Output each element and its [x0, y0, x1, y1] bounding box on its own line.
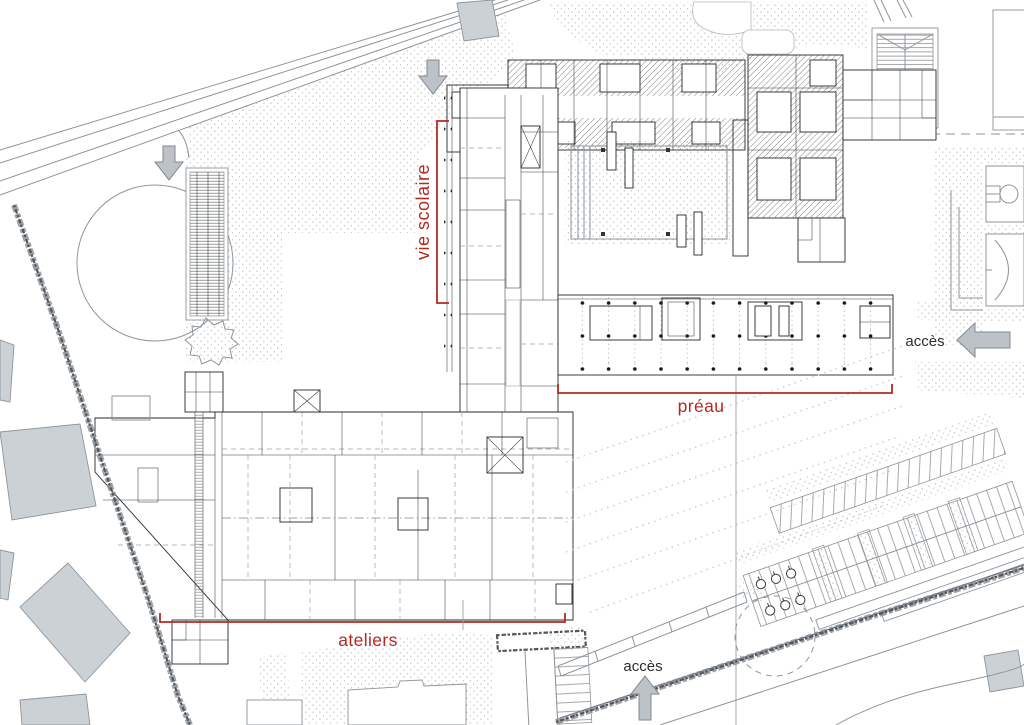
- label-acces-east: accès: [905, 333, 944, 350]
- site-plan-drawing: vie scolaire préau ateliers accès accès: [0, 0, 1024, 725]
- building-vie-scolaire-wing: [444, 85, 558, 412]
- down-arrow-icon: [155, 146, 183, 180]
- label-acces-south: accès: [623, 658, 662, 675]
- site-plan-page: vie scolaire préau ateliers accès accès: [0, 0, 1024, 725]
- label-ateliers: ateliers: [338, 630, 398, 650]
- building-east-wing: [733, 55, 936, 262]
- building-ateliers: [95, 372, 573, 664]
- label-preau: préau: [678, 396, 725, 416]
- handball-court: [986, 234, 1024, 306]
- bracket-preau: [558, 384, 892, 393]
- building-preau: [558, 295, 893, 375]
- parking-area: [719, 410, 1024, 660]
- label-vie-scolaire: vie scolaire: [413, 164, 433, 260]
- bleachers: [186, 168, 228, 320]
- basketball-court: [986, 166, 1024, 222]
- inner-courtyard: [565, 132, 733, 255]
